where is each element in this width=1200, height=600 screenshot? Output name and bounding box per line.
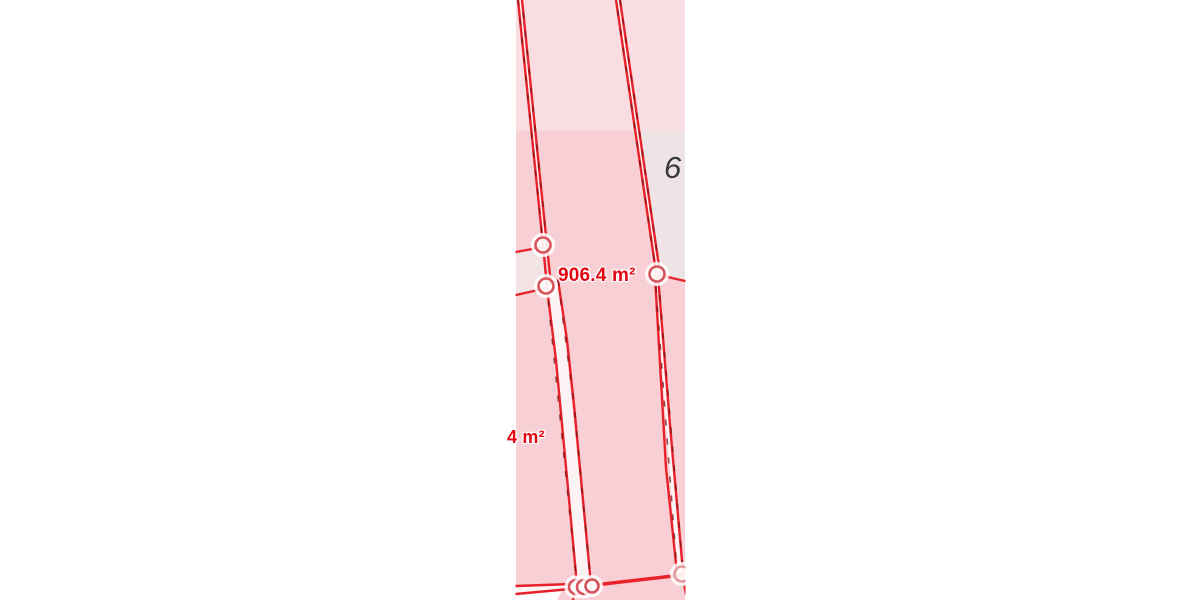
area-label-partial: 4 m² [507, 427, 545, 448]
map-viewport[interactable]: 906.4 m² 4 m² 6 [0, 0, 1200, 600]
parcel-number-label: 6 [664, 150, 681, 186]
vertex-marker[interactable] [586, 580, 599, 593]
map-canvas [0, 0, 1200, 600]
vertex-marker[interactable] [650, 267, 665, 282]
vertex-marker[interactable] [536, 238, 551, 253]
area-label: 906.4 m² [558, 265, 636, 287]
vertex-marker[interactable] [539, 279, 554, 294]
vertex-marker[interactable] [675, 567, 690, 582]
